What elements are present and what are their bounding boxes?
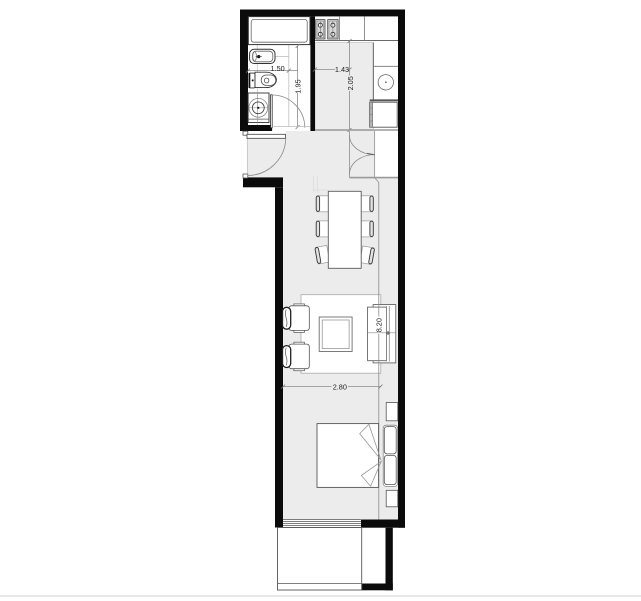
svg-text:1.50: 1.50	[270, 64, 284, 73]
svg-text:1.95: 1.95	[293, 79, 302, 93]
svg-text:2.05: 2.05	[346, 76, 355, 90]
svg-text:8.20: 8.20	[374, 318, 383, 332]
svg-text:2.80: 2.80	[333, 383, 347, 392]
svg-text:1.43: 1.43	[335, 65, 349, 74]
